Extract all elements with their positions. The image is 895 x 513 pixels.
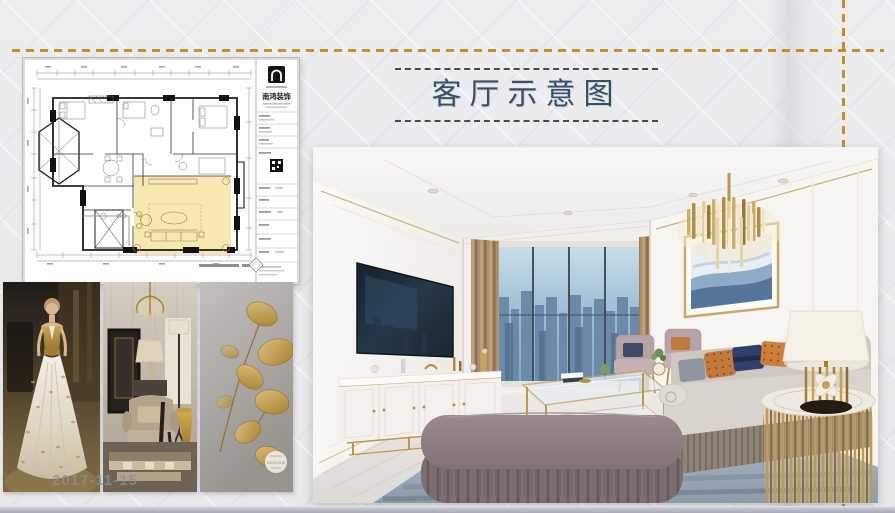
downlight [428, 189, 438, 193]
slide-canvas: 客厅示意图 南鸿装饰 [0, 0, 895, 513]
mood-image-goldleaf: DESIGN [200, 282, 293, 492]
armchair [122, 395, 180, 444]
downlight [689, 193, 697, 196]
floor-plan-svg: 南鸿装饰 [23, 58, 299, 284]
floor-plan-figure: 南鸿装饰 [22, 57, 300, 285]
design-badge-text: DESIGN [267, 460, 285, 465]
downlight [564, 211, 572, 215]
living-room-rendering-svg [313, 147, 878, 503]
sideboard [133, 380, 167, 396]
mood-image-interior [103, 282, 197, 492]
title-block: 客厅示意图 [395, 68, 658, 122]
slide-title: 客厅示意图 [395, 78, 658, 111]
date-watermark: 2017-11-15 [52, 472, 138, 489]
downlight [778, 179, 788, 183]
design-badge: DESIGN [265, 451, 287, 473]
ottoman [421, 413, 683, 503]
firm-name: 南鸿装饰 [262, 92, 291, 101]
living-room-photo [313, 147, 878, 503]
gold-dashed-line-top [12, 49, 884, 52]
plan-qr-code [270, 159, 283, 172]
mood-image-model [3, 282, 100, 492]
firm-logo-icon [268, 66, 285, 83]
bottom-edge-strip [0, 506, 895, 513]
mood-board: DESIGN [3, 282, 293, 492]
